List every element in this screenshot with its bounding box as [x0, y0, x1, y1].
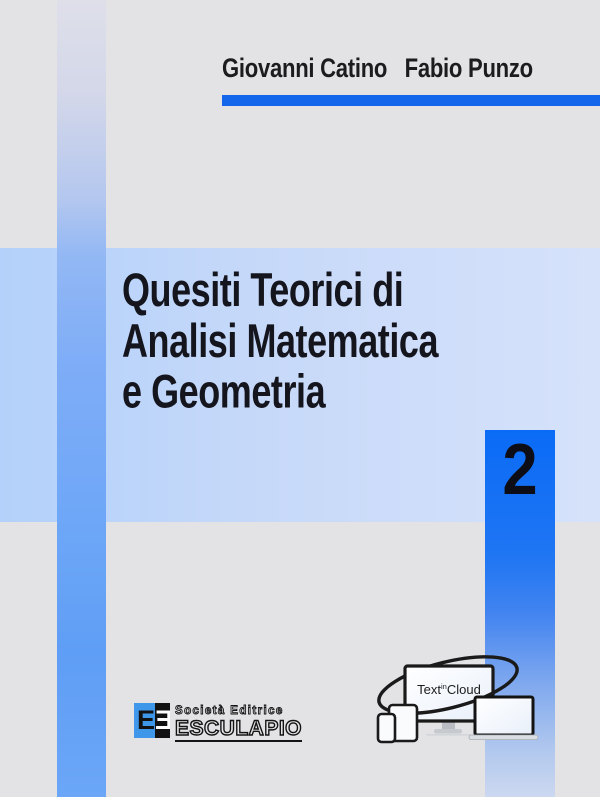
title-line-2: Analisi Matematica [122, 317, 438, 368]
textincloud-logo: TextinCloud [372, 650, 544, 746]
title-line-3: e Geometria [122, 367, 438, 418]
esculapio-monogram-icon: E Ǝ [134, 703, 170, 738]
publisher-underline [175, 740, 302, 742]
author-name-1: Giovanni Catino [222, 53, 387, 86]
smartphone-icon [378, 714, 395, 742]
authors-line: Giovanni Catino Fabio Punzo [222, 53, 533, 86]
book-title: Quesiti Teorici di Analisi Matematica e … [122, 266, 438, 418]
brand-text-post: Cloud [447, 682, 481, 697]
author-name-2: Fabio Punzo [405, 53, 533, 86]
authors-underline-bar [222, 95, 600, 106]
monogram-left: E [134, 703, 155, 738]
book-cover: Giovanni Catino Fabio Punzo Quesiti Teor… [0, 0, 600, 797]
brand-text-pre: Text [417, 682, 441, 697]
publisher-logo: E Ǝ Società Editrice ESCULAPIO [134, 703, 303, 742]
left-vertical-stripe [57, 0, 106, 797]
publisher-name-large: ESCULAPIO [175, 718, 303, 739]
laptop-icon [469, 697, 538, 740]
svg-text:TextinCloud: TextinCloud [417, 682, 481, 697]
monogram-right: Ǝ [155, 703, 170, 738]
title-line-1: Quesiti Teorici di [122, 266, 438, 317]
